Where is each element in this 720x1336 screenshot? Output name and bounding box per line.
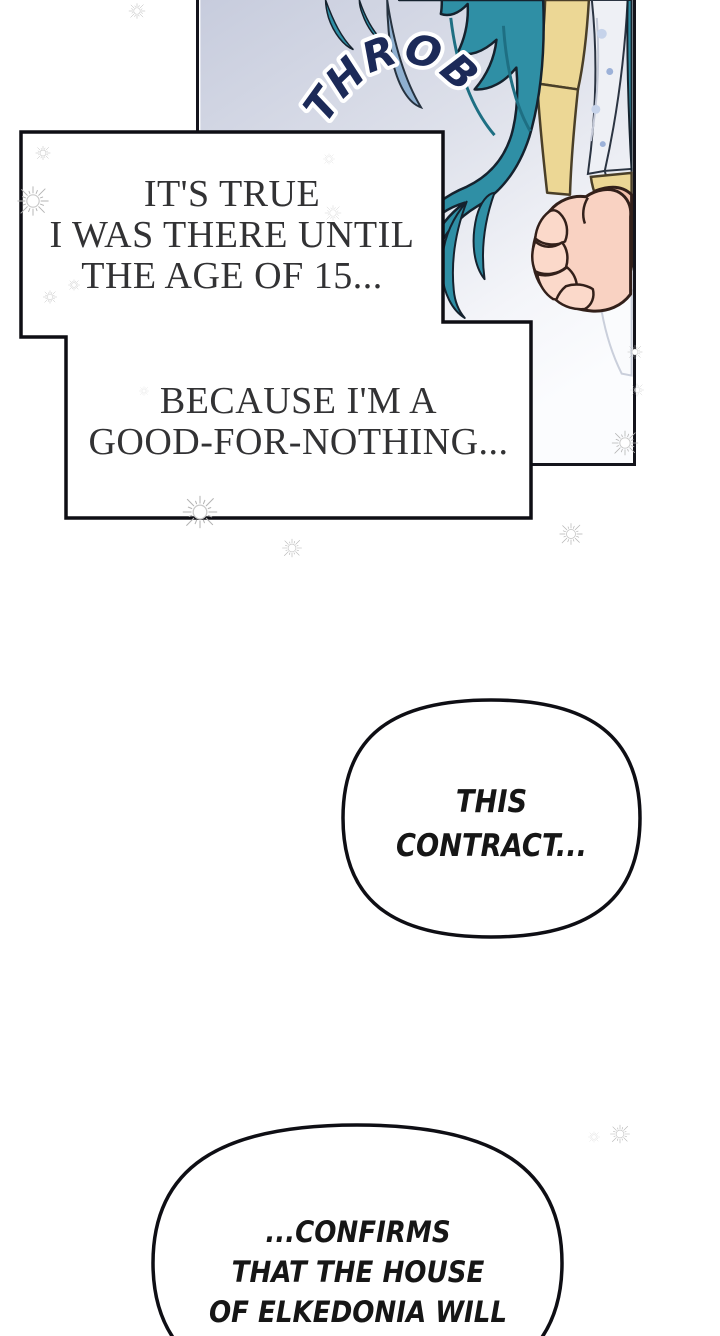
- sparkle-icon: [34, 144, 52, 162]
- bubble-line: THAT THE HOUSE: [174, 1252, 543, 1292]
- bubble-line: ...CONFIRMS: [174, 1212, 543, 1252]
- sparkle-icon: [280, 536, 304, 560]
- sparkle-icon: [609, 427, 641, 459]
- bubble-line: OF ELKEDONIA WILL: [174, 1292, 543, 1332]
- sparkle-icon: [557, 520, 585, 548]
- sparkle-icon: [179, 491, 221, 533]
- sparkle-icon: [629, 382, 646, 399]
- sparkle-icon: [14, 182, 52, 220]
- sparkle-icon: [138, 385, 150, 397]
- comic-page: THROB IT'S TRUE I WAS THERE UNTIL THE AG…: [0, 0, 720, 1336]
- sparkle-icon: [626, 343, 644, 361]
- sparkle-icon: [587, 1130, 601, 1144]
- sparkle-icon: [322, 152, 336, 166]
- sparkle-icon: [42, 289, 59, 306]
- bubble-text-confirms: ...CONFIRMS THAT THE HOUSE OF ELKEDONIA …: [174, 1212, 543, 1332]
- sparkle-icon: [608, 1122, 632, 1146]
- sparkle-icon: [127, 1, 147, 21]
- sparkle-icon: [67, 278, 81, 292]
- sparkle-icon: [323, 203, 343, 223]
